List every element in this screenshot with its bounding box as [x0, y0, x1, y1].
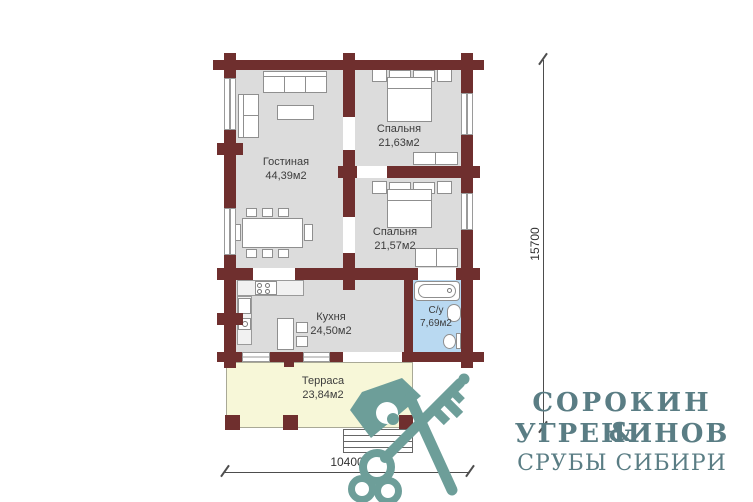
logo-text-line3: СРУБЫ СИБИРИ	[512, 451, 732, 476]
sofa-cushion	[284, 76, 306, 93]
dining-chair	[278, 208, 289, 217]
kitchen-label: Кухня 24,50м2	[286, 310, 376, 339]
window	[303, 352, 330, 362]
bedroom1-label: Спальня 21,63м2	[354, 122, 444, 151]
sofa-cushion	[305, 76, 327, 93]
room-name: Гостиная	[241, 155, 331, 169]
vertical-dimension-line	[543, 60, 544, 428]
stove-burner	[265, 289, 270, 294]
terrace-post-stub	[284, 362, 294, 367]
window	[461, 93, 473, 135]
coffee-table	[277, 105, 314, 120]
room-area: 21,57м2	[350, 239, 440, 253]
nightstand	[437, 181, 452, 194]
room-area: 24,50м2	[286, 324, 376, 338]
sofa-cushion	[263, 76, 285, 93]
vertical-dimension-value: 15700	[528, 214, 542, 274]
room-area: 21,63м2	[354, 136, 444, 150]
dining-chair	[262, 249, 273, 258]
door-opening	[357, 166, 387, 178]
dining-table	[242, 218, 303, 248]
terrace-post	[225, 415, 240, 430]
window	[224, 78, 236, 130]
armchair-cushion	[243, 115, 259, 138]
door-opening	[418, 268, 456, 280]
bed	[387, 77, 432, 122]
bed	[387, 189, 432, 228]
dining-chair	[246, 208, 257, 217]
bedroom2-label: Спальня 21,57м2	[350, 225, 440, 254]
stove-burner	[265, 283, 270, 288]
nightstand	[372, 181, 387, 194]
nightstand	[372, 69, 387, 82]
dimension-tick	[220, 465, 230, 478]
bed-sheet-line	[387, 88, 432, 89]
room-name: С/у	[391, 304, 481, 317]
room-area: 7,69м2	[391, 317, 481, 330]
wardrobe-divider	[435, 152, 436, 165]
log-end-stub	[217, 313, 243, 325]
room-name: Спальня	[350, 225, 440, 239]
window	[461, 193, 473, 230]
room-area: 44,39м2	[241, 169, 331, 183]
nightstand	[437, 69, 452, 82]
dining-chair	[304, 224, 313, 241]
floor-plan-page: Гостиная 44,39м2 Спальня 21,63м2 Спальня…	[0, 0, 753, 502]
dining-chair	[262, 208, 273, 217]
room-name: Кухня	[286, 310, 376, 324]
dining-chair	[246, 249, 257, 258]
living-room-label: Гостиная 44,39м2	[241, 155, 331, 184]
bathtub-drain	[447, 288, 452, 293]
logo-text-line2: УГРЕНИНОВ	[512, 419, 732, 449]
door-opening	[253, 268, 295, 280]
axe-and-key-crossed-icon	[346, 350, 538, 502]
fridge	[238, 298, 251, 314]
window	[224, 208, 236, 255]
armchair-cushion	[243, 94, 259, 116]
log-end-stub	[217, 143, 243, 155]
dining-chair	[278, 249, 289, 258]
room-name: Спальня	[354, 122, 444, 136]
toilet-bowl	[443, 334, 456, 349]
bed-sheet-line	[387, 200, 432, 201]
terrace-post	[283, 415, 298, 430]
stove-burner	[257, 283, 262, 288]
stove-burner	[257, 289, 262, 294]
window	[242, 352, 270, 362]
bathroom-label: С/у 7,69м2	[391, 304, 481, 330]
